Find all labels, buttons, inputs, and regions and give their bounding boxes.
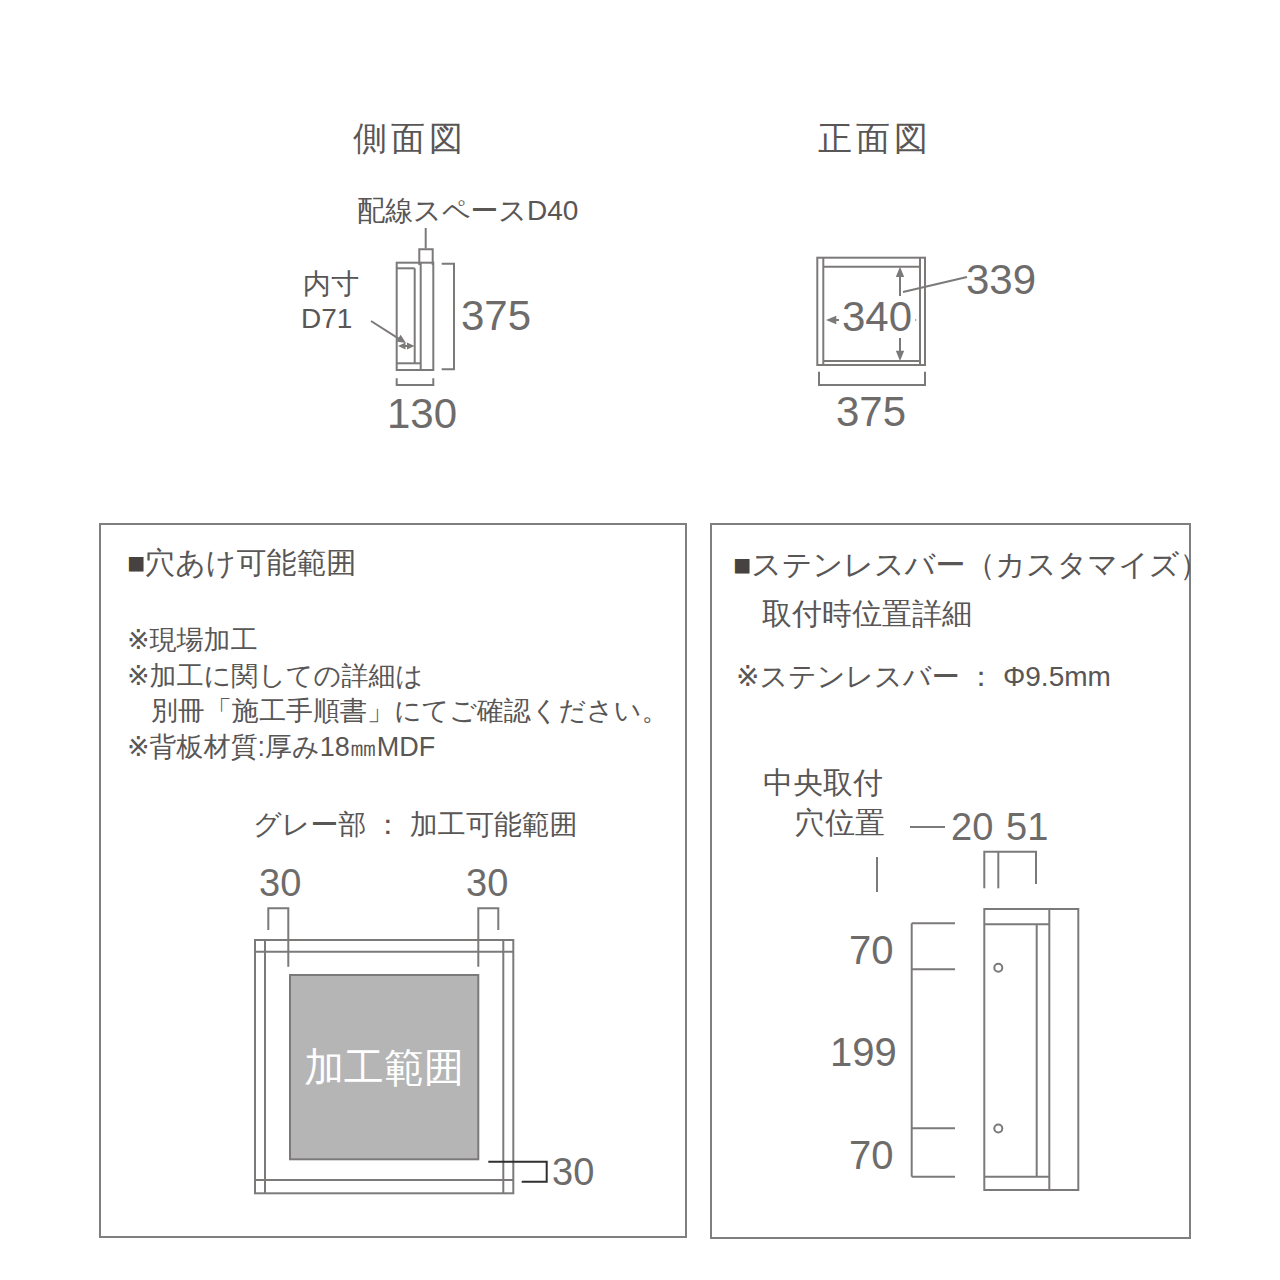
front-view-title: 正面図 — [818, 121, 932, 155]
stainless-bar-diagram — [877, 827, 1078, 1190]
square-bullet-icon: ■ — [733, 548, 751, 581]
center-mount-label-line1: 中央取付 — [763, 768, 883, 798]
mount-hole-bottom — [994, 1125, 1002, 1133]
inner-depth-label-line2: D71 — [301, 305, 352, 333]
note-manual-reference: 別冊「施工手順書」にてご確認ください。 — [151, 698, 668, 725]
inner-depth-label-line1: 内寸 — [303, 270, 359, 298]
gray-area-legend: グレー部 ： 加工可能範囲 — [253, 811, 578, 839]
hole-spacing-middle-dimension: 199 — [830, 1032, 897, 1072]
hole-spacing-top-dimension: 70 — [849, 930, 894, 970]
drilling-panel-heading: ■穴あけ可能範囲 — [127, 548, 357, 578]
bar-diameter-note: ※ステンレスバー ： Φ9.5mm — [736, 663, 1111, 691]
mount-hole-top — [994, 964, 1002, 972]
center-mount-label-line2: 穴位置 — [795, 808, 885, 838]
front-inner-height-dimension: 339 — [966, 259, 1036, 301]
stainless-panel-heading-text: ステンレスバー（カスタマイズ） — [751, 548, 1209, 581]
side-view-drawing — [371, 228, 454, 385]
drawing-sheet: 側面図 配線スペースD40 内寸 D71 375 130 正面図 339 340… — [0, 0, 1280, 1280]
mounting-position-subheading: 取付時位置詳細 — [762, 599, 972, 629]
front-inner-width-dimension: 340 — [839, 296, 915, 338]
stainless-panel-heading: ■ステンレスバー（カスタマイズ） — [733, 550, 1210, 580]
square-bullet-icon: ■ — [127, 546, 145, 579]
note-backboard-material: ※背板材質:厚み18㎜MDF — [127, 734, 435, 761]
hole-offset-dimension-51: 51 — [1006, 808, 1048, 846]
margin-dimension-bottom: 30 — [552, 1153, 594, 1191]
side-depth-dimension: 130 — [387, 393, 457, 435]
margin-dimension-top-left: 30 — [259, 864, 301, 902]
hole-offset-dimension-20: 20 — [951, 808, 993, 846]
side-view-title: 側面図 — [353, 121, 467, 155]
processing-area-label: 加工範囲 — [290, 1047, 478, 1087]
side-height-dimension: 375 — [461, 295, 531, 337]
wiring-space-label: 配線スペースD40 — [357, 197, 578, 225]
front-width-dimension: 375 — [836, 391, 906, 433]
note-onsite-processing: ※現場加工 — [127, 627, 258, 654]
margin-dimension-top-right: 30 — [466, 864, 508, 902]
note-processing-details: ※加工に関しての詳細は — [127, 663, 423, 690]
hole-spacing-bottom-dimension: 70 — [849, 1135, 894, 1175]
drilling-panel-heading-text: 穴あけ可能範囲 — [145, 546, 356, 579]
